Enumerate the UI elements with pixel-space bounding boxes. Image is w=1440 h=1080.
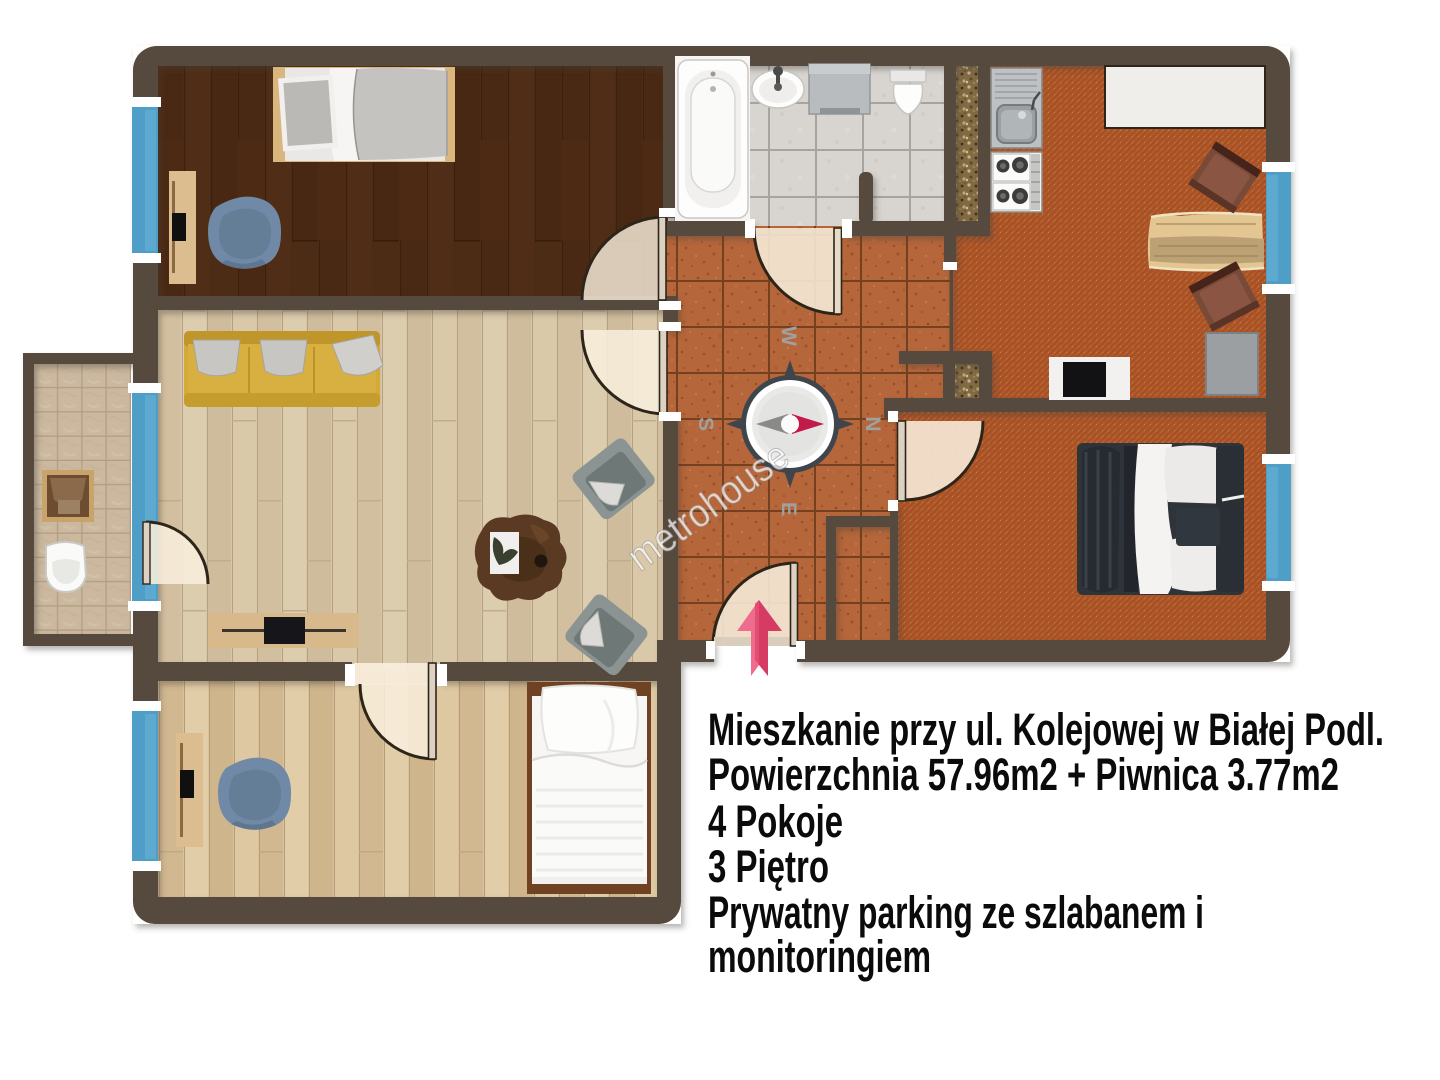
svg-text:monitoringiem: monitoringiem (708, 931, 931, 982)
svg-text:3 Piętro: 3 Piętro (708, 841, 829, 892)
svg-text:4 Pokoje: 4 Pokoje (708, 796, 843, 847)
svg-text:W: W (777, 326, 800, 346)
svg-text:N: N (861, 416, 884, 431)
svg-text:Mieszkanie przy ul. Kolejowej: Mieszkanie przy ul. Kolejowej w Białej P… (708, 704, 1384, 755)
svg-text:E: E (777, 502, 800, 516)
svg-text:Powierzchnia 57.96m2 + Piwnica: Powierzchnia 57.96m2 + Piwnica 3.77m2 (708, 749, 1339, 800)
svg-text:S: S (694, 417, 717, 431)
